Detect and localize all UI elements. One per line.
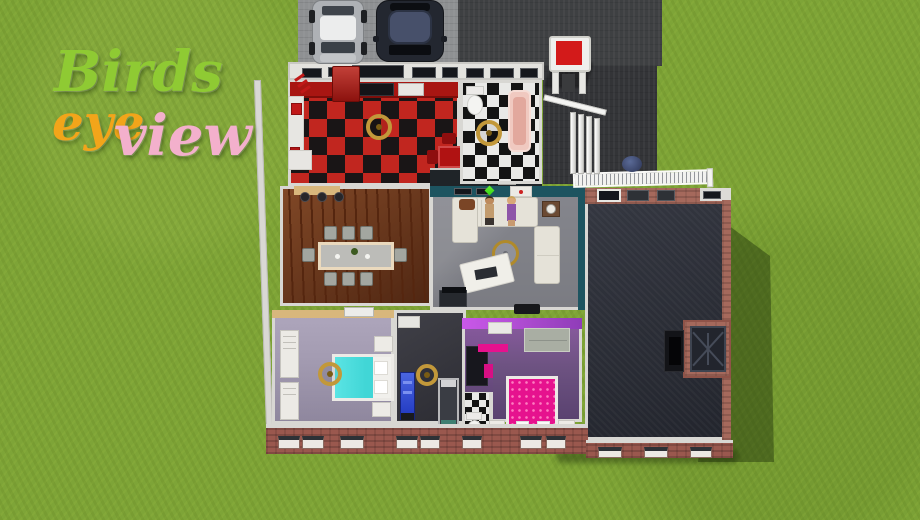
kitchen-chair[interactable] [427,150,438,164]
ceiling-light[interactable] [366,114,392,140]
dining-chair[interactable] [342,272,355,286]
car-roof [320,16,356,40]
window [462,436,482,449]
plumbob [485,186,495,196]
decor-dashes [294,74,312,94]
window [546,436,566,449]
shelf[interactable] [488,322,512,334]
vanity-accent [478,344,508,352]
window [598,447,622,458]
stove[interactable] [356,83,394,96]
sim-male[interactable] [483,187,496,227]
vanity-accent [484,364,493,378]
window [302,436,324,449]
tv-stand[interactable] [439,290,467,307]
window [690,447,712,458]
tv[interactable] [442,287,466,293]
patio-pillar [586,116,592,174]
windshield [389,45,431,55]
window [520,436,542,449]
fence-post [707,168,713,187]
wheel [309,42,315,55]
dresser-wide[interactable] [524,328,570,352]
sim-legs [508,220,515,226]
dining-chair[interactable] [394,248,407,262]
exercise-machine[interactable] [400,372,415,420]
dining-chair[interactable] [360,226,373,240]
sofa-item[interactable] [459,199,475,210]
bar-stool[interactable] [300,192,310,202]
window [396,436,418,449]
dining-table[interactable] [318,242,394,270]
mailbox-leg [579,72,586,94]
rear-window [322,6,354,15]
car-roof [388,10,432,44]
table-plant [351,248,358,255]
exterior-wall-top [288,62,544,80]
wheel [361,10,367,23]
sim-legs [485,218,494,225]
window [520,68,538,78]
nightstand[interactable] [374,336,393,352]
big-room-floor [585,188,731,440]
title-word-birds: Birds [54,44,223,100]
car-navy[interactable] [376,0,444,62]
skylight [627,190,649,201]
mirror [373,36,379,42]
title-word-view: view [114,108,252,164]
doormat [514,304,540,314]
exterior-wall-bottom [266,424,588,454]
hood [320,54,356,62]
patio-pillar [594,118,600,174]
dining-chair[interactable] [324,272,337,286]
kitchen-counter-corner[interactable] [288,150,312,170]
grill[interactable] [622,156,642,172]
dining-chair[interactable] [360,272,373,286]
kitchen-chair[interactable] [442,133,456,144]
toilet[interactable] [466,86,486,116]
laptop[interactable] [474,266,497,280]
chimney [683,320,731,378]
title: Birds eye view [50,44,290,184]
car-silver[interactable] [312,0,364,64]
patio-pillar [578,114,584,174]
refrigerator[interactable] [332,66,360,102]
window [412,67,436,78]
small-appliance[interactable] [291,103,302,115]
bar-stool[interactable] [334,192,344,202]
window [490,68,514,78]
dresser[interactable] [280,382,299,420]
dining-chair[interactable] [302,248,315,262]
bathtub[interactable] [508,90,531,152]
window [344,307,374,317]
windshield [321,42,355,53]
skylight [597,189,621,202]
bar-stool[interactable] [317,192,327,202]
sim-body [507,204,516,221]
fireplace[interactable] [664,330,684,372]
sim-female[interactable] [505,187,518,227]
pillow [374,380,388,394]
skylight [657,190,675,201]
plate [365,254,370,259]
exterior-wall-bottom [586,440,733,458]
mailbox-leg [552,72,559,94]
sim-body [485,204,494,219]
mailbox[interactable] [549,34,595,94]
window [442,67,458,78]
wheel [361,42,367,55]
loveseat[interactable] [534,226,560,284]
mailbox-gap [562,74,575,92]
window [644,447,668,458]
glass-roof [690,326,726,372]
patio-pillar [570,112,576,174]
bedroom1-wall [272,310,394,318]
window [420,436,440,449]
shelf[interactable] [398,316,420,328]
window [466,68,484,78]
side-table[interactable] [542,201,560,217]
pillow [374,361,388,375]
nightstand[interactable] [372,402,391,417]
mailbox-flag-panel [556,41,582,65]
mirror [441,36,447,42]
kitchen-counter[interactable] [290,82,458,98]
dining-chair[interactable] [324,226,337,240]
ceiling-light[interactable] [416,364,438,386]
bathroom-light[interactable] [476,120,502,146]
kitchen-sink[interactable] [398,83,424,96]
window [340,436,364,449]
sims-birds-eye-screenshot: Birds eye view [0,0,920,520]
wheel [309,10,315,23]
plate [335,254,340,259]
lamp[interactable] [546,204,556,214]
window [278,436,300,449]
ceiling-light[interactable] [318,362,342,386]
dresser[interactable] [280,330,299,378]
dining-chair[interactable] [342,226,355,240]
